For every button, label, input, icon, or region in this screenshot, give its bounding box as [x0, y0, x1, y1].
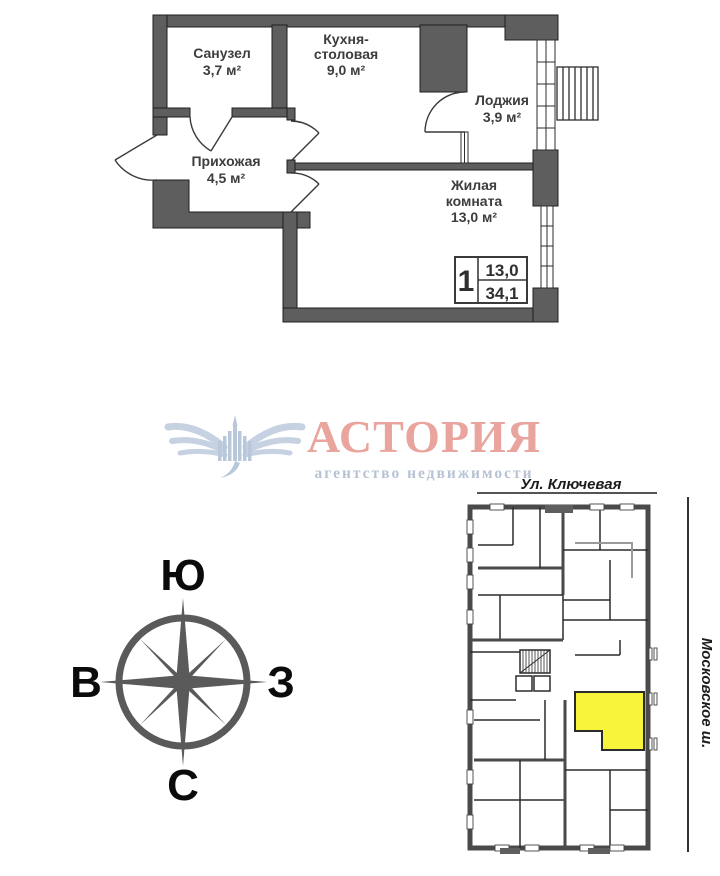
compass-west-label: З — [267, 658, 295, 707]
room-name-sanuzel: Санузел — [193, 45, 251, 61]
room-area-sanuzel: 3,7 м² — [203, 62, 242, 78]
stairwell — [520, 650, 550, 673]
room-area-hallway: 4,5 м² — [207, 170, 246, 186]
balcony-grate — [557, 67, 598, 120]
logo-title: АСТОРИЯ — [307, 411, 541, 462]
street-label-right: Московское ш. — [698, 638, 715, 749]
apartment-floor-plan: Санузел 3,7 м² Кухня- столовая 9,0 м² Ло… — [0, 0, 720, 345]
room-name-kitchen-1: Кухня- — [323, 31, 369, 47]
room-label-kitchen: Кухня- столовая 9,0 м² — [314, 31, 378, 78]
room-label-loggia: Лоджия 3,9 м² — [475, 92, 529, 125]
room-label-sanuzel: Санузел 3,7 м² — [193, 45, 251, 78]
compass-star — [100, 598, 267, 766]
building-outline — [470, 507, 648, 848]
room-area-kitchen: 9,0 м² — [327, 62, 366, 78]
info-rooms-count: 1 — [458, 265, 475, 298]
real-estate-flyer: Санузел 3,7 м² Кухня- столовая 9,0 м² Ло… — [0, 0, 720, 876]
compass-north-label: С — [167, 761, 199, 810]
room-label-living: Жилая комната 13,0 м² — [446, 177, 503, 225]
info-total-area: 34,1 — [485, 284, 518, 303]
room-label-hallway: Прихожая 4,5 м² — [191, 153, 260, 186]
building-site-plan: Ул. Ключевая Московское ш. — [440, 460, 720, 876]
info-box: 1 13,0 34,1 — [455, 257, 527, 303]
room-name-living-2: комната — [446, 193, 503, 209]
compass-south-label: Ю — [160, 551, 205, 600]
room-name-kitchen-2: столовая — [314, 46, 378, 62]
logo-emblem-icon — [168, 415, 302, 478]
room-name-loggia: Лоджия — [475, 92, 529, 108]
compass-east-label: В — [70, 658, 102, 707]
info-living-area: 13,0 — [485, 261, 518, 280]
street-label-top: Ул. Ключевая — [521, 476, 622, 493]
room-name-hallway: Прихожая — [191, 153, 260, 169]
room-name-living-1: Жилая — [450, 177, 497, 193]
compass-rose: Ю В З С — [50, 550, 330, 820]
room-area-living: 13,0 м² — [451, 209, 497, 225]
room-area-loggia: 3,9 м² — [483, 109, 522, 125]
